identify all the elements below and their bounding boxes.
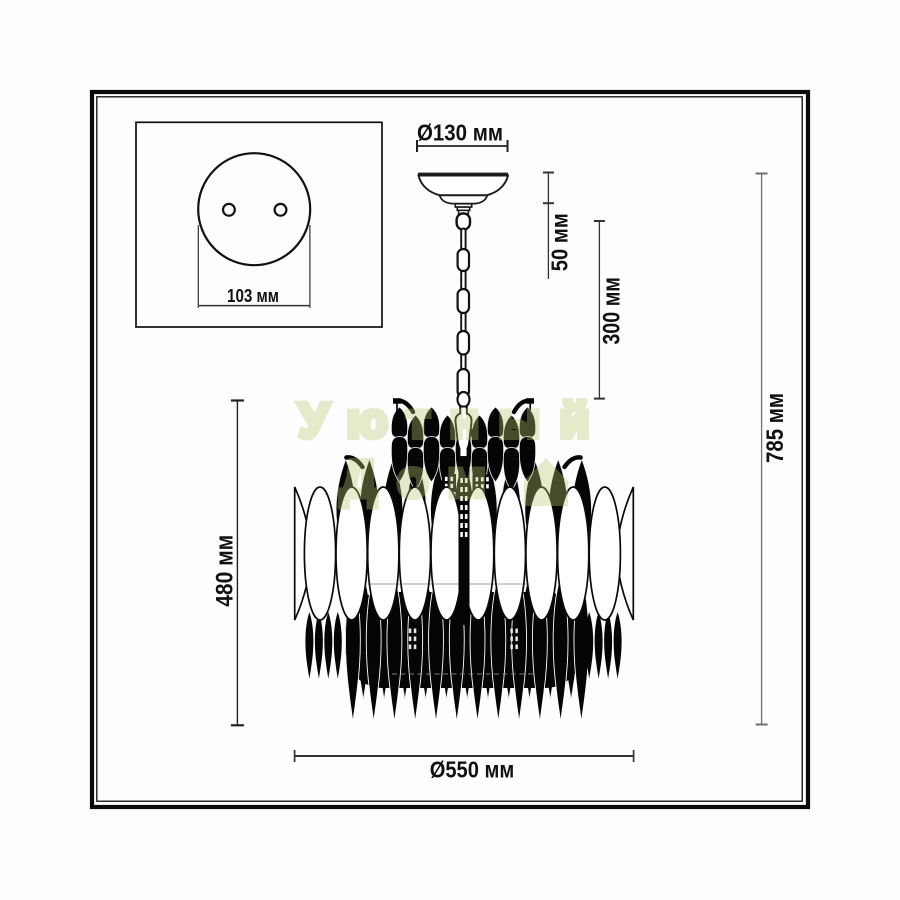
svg-text:Дом: Дом xyxy=(340,451,505,508)
svg-text:Уютный: Уютный xyxy=(299,395,610,448)
svg-text:103 мм: 103 мм xyxy=(227,285,279,306)
svg-text:300 мм: 300 мм xyxy=(599,277,626,345)
svg-text:480 мм: 480 мм xyxy=(212,535,239,607)
svg-text:Ø550 мм: Ø550 мм xyxy=(430,756,515,782)
svg-text:Ø130 мм: Ø130 мм xyxy=(417,120,503,146)
svg-text:785 мм: 785 мм xyxy=(762,393,789,463)
svg-text:50 мм: 50 мм xyxy=(547,213,573,271)
